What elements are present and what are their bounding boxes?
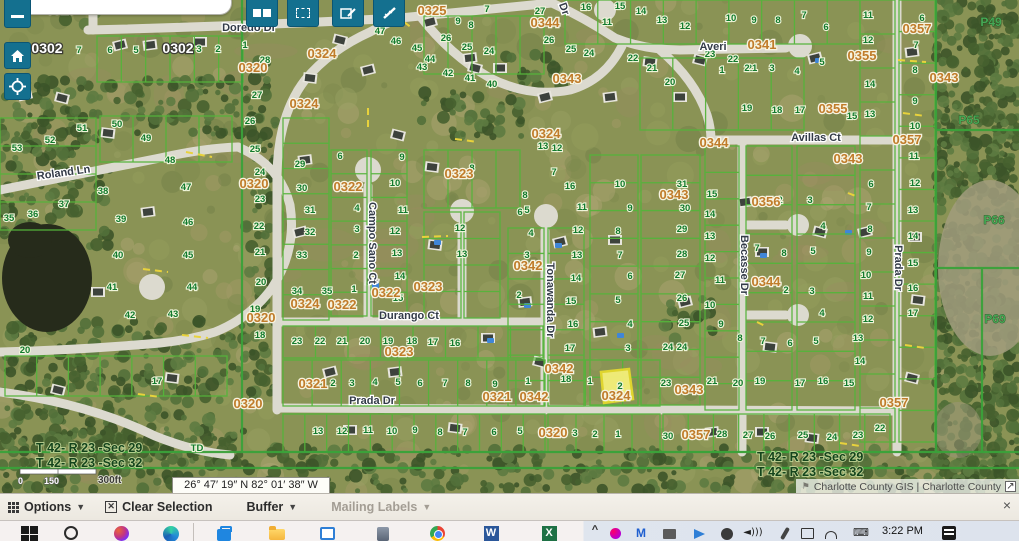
- svg-text:P65: P65: [958, 113, 980, 127]
- svg-text:4: 4: [627, 319, 633, 330]
- measure-icon: [382, 6, 397, 20]
- select-rectangle-icon: [296, 8, 310, 18]
- svg-text:9: 9: [866, 247, 871, 258]
- svg-text:3: 3: [354, 224, 359, 235]
- svg-text:16: 16: [568, 319, 579, 330]
- svg-text:9: 9: [718, 319, 723, 330]
- svg-text:27: 27: [252, 90, 263, 101]
- tray-audio-icon[interactable]: [718, 524, 736, 541]
- svg-text:12: 12: [863, 314, 874, 325]
- svg-text:43: 43: [417, 62, 428, 73]
- svg-text:26: 26: [544, 35, 555, 46]
- svg-text:9: 9: [399, 152, 404, 163]
- svg-text:5: 5: [810, 246, 816, 257]
- taskbar-store-button[interactable]: [215, 524, 233, 541]
- svg-text:0357: 0357: [880, 395, 909, 410]
- svg-text:42: 42: [125, 310, 136, 321]
- svg-text:13: 13: [705, 231, 716, 242]
- svg-text:22: 22: [628, 53, 639, 64]
- svg-text:23: 23: [853, 430, 864, 441]
- svg-text:20: 20: [665, 77, 676, 88]
- store-icon: [217, 529, 231, 541]
- svg-text:16: 16: [565, 181, 576, 192]
- svg-text:15: 15: [847, 111, 858, 122]
- svg-text:51: 51: [77, 123, 88, 134]
- svg-text:T 42- R 23 -Sec 32: T 42- R 23 -Sec 32: [757, 465, 863, 479]
- svg-text:26: 26: [677, 293, 688, 304]
- windows-taskbar: W X ^ M ◄))) ⌨ 3:22 PM: [0, 520, 1019, 541]
- tray-expand-button[interactable]: ^: [586, 524, 604, 541]
- svg-text:29: 29: [677, 224, 688, 235]
- svg-text:11: 11: [909, 151, 920, 162]
- svg-text:22: 22: [875, 423, 886, 434]
- svg-text:0341: 0341: [748, 37, 777, 52]
- printer-icon: [663, 529, 676, 539]
- svg-text:7: 7: [76, 45, 81, 56]
- windows-start-button[interactable]: [20, 524, 38, 541]
- svg-text:47: 47: [181, 182, 192, 193]
- svg-text:7: 7: [913, 40, 918, 51]
- svg-text:23: 23: [292, 336, 303, 347]
- svg-text:3: 3: [807, 195, 812, 206]
- svg-text:13: 13: [657, 15, 668, 26]
- tray-book-icon[interactable]: [798, 524, 816, 541]
- svg-text:22: 22: [315, 336, 326, 347]
- svg-text:35: 35: [4, 213, 15, 224]
- svg-text:13: 13: [392, 248, 403, 259]
- svg-text:7: 7: [617, 250, 622, 261]
- svg-text:12: 12: [863, 35, 874, 46]
- svg-text:12: 12: [390, 226, 401, 237]
- tray-pen-icon[interactable]: [776, 524, 794, 541]
- svg-text:6: 6: [491, 427, 496, 438]
- svg-text:32: 32: [305, 227, 316, 238]
- svg-text:T 42- R 23 -Sec 32: T 42- R 23 -Sec 32: [36, 456, 142, 470]
- tray-keyboard-icon[interactable]: ⌨: [852, 526, 870, 541]
- svg-text:13: 13: [538, 141, 549, 152]
- svg-text:14: 14: [636, 6, 647, 17]
- taskbar-copilot-button[interactable]: [112, 524, 130, 541]
- share-icon: [694, 529, 705, 539]
- svg-text:0342: 0342: [545, 361, 574, 376]
- svg-text:12: 12: [910, 178, 921, 189]
- svg-text:1: 1: [525, 376, 531, 387]
- chevron-down-icon: ▼: [422, 502, 431, 512]
- svg-text:0343: 0343: [834, 151, 863, 166]
- svg-text:6: 6: [417, 378, 422, 389]
- coordinates-readout: 26° 47′ 19″ N 82° 01′ 38″ W: [172, 477, 330, 493]
- svg-text:30: 30: [297, 183, 308, 194]
- svg-text:10: 10: [615, 179, 626, 190]
- svg-text:28: 28: [677, 249, 688, 260]
- svg-text:17: 17: [565, 343, 576, 354]
- taskbar-app-window-button[interactable]: [318, 524, 336, 541]
- svg-text:6: 6: [787, 338, 792, 349]
- svg-text:31: 31: [305, 205, 316, 216]
- svg-text:12: 12: [455, 223, 466, 234]
- svg-text:25: 25: [250, 144, 261, 155]
- svg-text:25: 25: [462, 42, 473, 53]
- svg-text:T 42- R 23 -Sec 29: T 42- R 23 -Sec 29: [36, 441, 142, 455]
- svg-text:1: 1: [242, 40, 248, 51]
- svg-text:Prada Dr: Prada Dr: [349, 395, 396, 407]
- svg-text:29: 29: [295, 159, 306, 170]
- svg-text:21: 21: [707, 376, 718, 387]
- svg-text:8: 8: [781, 248, 786, 259]
- svg-text:21: 21: [647, 63, 658, 74]
- svg-text:26: 26: [245, 116, 256, 127]
- svg-text:10: 10: [726, 13, 737, 24]
- app-window-icon: [320, 527, 335, 540]
- svg-text:2: 2: [592, 429, 597, 440]
- svg-text:45: 45: [183, 250, 194, 261]
- svg-text:8: 8: [775, 15, 780, 26]
- svg-text:7: 7: [442, 378, 447, 389]
- svg-text:0357: 0357: [903, 21, 932, 36]
- buffer-menu[interactable]: Buffer ▼: [236, 494, 307, 520]
- svg-text:45: 45: [412, 43, 423, 54]
- svg-text:11: 11: [363, 425, 374, 436]
- options-label: Options: [24, 500, 71, 514]
- svg-text:8: 8: [737, 333, 742, 344]
- svg-text:3: 3: [196, 44, 201, 55]
- attribution-logo-icon: ⚑: [802, 481, 810, 492]
- tray-network-icon[interactable]: [822, 524, 840, 541]
- svg-text:2: 2: [516, 290, 521, 301]
- svg-text:8: 8: [615, 226, 620, 237]
- svg-text:2: 2: [330, 378, 335, 389]
- svg-text:P49: P49: [980, 15, 1002, 29]
- svg-text:8: 8: [912, 65, 917, 76]
- svg-text:14: 14: [855, 356, 866, 367]
- svg-text:46: 46: [391, 36, 402, 47]
- close-icon[interactable]: ×: [1003, 497, 1011, 513]
- svg-text:20: 20: [256, 277, 267, 288]
- svg-text:5: 5: [819, 57, 825, 68]
- clear-selection-button[interactable]: ✕ Clear Selection: [95, 494, 222, 520]
- svg-text:14: 14: [705, 209, 716, 220]
- measure-button[interactable]: [373, 0, 405, 27]
- tray-speaker-icon[interactable]: ◄))): [744, 527, 762, 541]
- map-attribution: ⚑ Charlotte County GIS | Charlotte Count…: [796, 479, 1019, 493]
- svg-text:0344: 0344: [700, 135, 730, 150]
- svg-text:16: 16: [908, 283, 919, 294]
- svg-text:7: 7: [760, 336, 765, 347]
- svg-text:0322: 0322: [334, 179, 363, 194]
- svg-text:40: 40: [487, 79, 498, 90]
- svg-text:14: 14: [395, 271, 406, 282]
- svg-text:36: 36: [28, 209, 39, 220]
- svg-text:4: 4: [354, 203, 360, 214]
- svg-text:50: 50: [112, 119, 123, 130]
- svg-text:T 42- R 23 -Sec 29: T 42- R 23 -Sec 29: [757, 450, 863, 464]
- svg-text:0344: 0344: [752, 274, 782, 289]
- tray-copilot-icon[interactable]: [606, 524, 624, 541]
- news-icon: [942, 526, 956, 540]
- svg-text:0355: 0355: [819, 101, 848, 116]
- options-menu[interactable]: Options ▼: [0, 494, 95, 520]
- svg-text:17: 17: [908, 308, 919, 319]
- svg-text:0320: 0320: [239, 60, 268, 75]
- zoom-out-button[interactable]: [4, 0, 31, 28]
- svg-text:7: 7: [551, 167, 556, 178]
- home-button[interactable]: [4, 42, 31, 69]
- svg-text:17: 17: [152, 376, 163, 387]
- svg-text:47: 47: [375, 26, 386, 37]
- mailing-labels-menu[interactable]: Mailing Labels ▼: [321, 494, 441, 520]
- svg-text:6: 6: [868, 179, 873, 190]
- svg-text:44: 44: [187, 282, 198, 293]
- tray-printer-icon[interactable]: [660, 524, 678, 541]
- svg-text:25: 25: [798, 430, 809, 441]
- svg-text:25: 25: [679, 318, 690, 329]
- svg-text:41: 41: [107, 282, 118, 293]
- svg-text:23: 23: [661, 378, 672, 389]
- mailing-labels-label: Mailing Labels: [331, 500, 417, 514]
- svg-text:11: 11: [398, 205, 409, 216]
- grid-menu-icon: [8, 502, 19, 513]
- svg-text:300ft: 300ft: [98, 475, 122, 486]
- svg-text:TD: TD: [191, 443, 204, 454]
- svg-text:Prada Dr: Prada Dr: [892, 245, 904, 292]
- svg-text:Campo Sano Ct: Campo Sano Ct: [366, 202, 378, 284]
- svg-text:12: 12: [705, 253, 716, 264]
- svg-text:8: 8: [437, 427, 442, 438]
- expand-icon[interactable]: ↗: [1005, 481, 1016, 492]
- svg-text:8: 8: [468, 20, 473, 31]
- svg-text:17: 17: [795, 105, 806, 116]
- svg-text:21: 21: [255, 247, 266, 258]
- svg-text:5: 5: [524, 205, 530, 216]
- svg-text:0343: 0343: [553, 71, 582, 86]
- svg-text:0342: 0342: [520, 389, 549, 404]
- svg-text:0321: 0321: [299, 376, 328, 391]
- svg-text:10: 10: [705, 300, 716, 311]
- edit-icon: [340, 7, 356, 20]
- svg-text:17: 17: [795, 378, 806, 389]
- svg-text:4: 4: [819, 308, 825, 319]
- svg-text:0343: 0343: [930, 70, 959, 85]
- svg-text:5: 5: [133, 45, 139, 56]
- svg-text:0: 0: [18, 476, 23, 486]
- svg-text:4: 4: [820, 221, 826, 232]
- svg-text:10: 10: [861, 270, 872, 281]
- svg-text:0356: 0356: [752, 194, 781, 209]
- svg-text:19: 19: [742, 103, 753, 114]
- svg-text:19: 19: [755, 376, 766, 387]
- tray-share-icon[interactable]: [690, 524, 708, 541]
- svg-text:3: 3: [349, 378, 354, 389]
- svg-text:42: 42: [443, 68, 454, 79]
- svg-text:1: 1: [587, 376, 593, 387]
- svg-text:0322: 0322: [372, 285, 401, 300]
- svg-text:12: 12: [573, 225, 584, 236]
- svg-text:2: 2: [744, 63, 749, 74]
- svg-text:43: 43: [168, 309, 179, 320]
- svg-text:49: 49: [141, 133, 152, 144]
- taskbar-word-button[interactable]: W: [482, 524, 500, 541]
- taskbar-clock[interactable]: 3:22 PM: [882, 525, 923, 537]
- svg-text:13: 13: [457, 249, 468, 260]
- svg-text:14: 14: [865, 79, 876, 90]
- edit-button[interactable]: [332, 0, 364, 27]
- taskbar-news-button[interactable]: [940, 524, 958, 541]
- svg-text:0324: 0324: [602, 388, 632, 403]
- svg-text:6: 6: [823, 22, 828, 33]
- m-icon: M: [636, 526, 646, 540]
- chevron-down-icon: ▼: [288, 502, 297, 512]
- svg-text:4: 4: [794, 66, 800, 77]
- svg-text:3: 3: [625, 343, 630, 354]
- svg-text:9: 9: [412, 425, 417, 436]
- svg-text:20: 20: [360, 336, 371, 347]
- svg-text:Durango Ct: Durango Ct: [379, 310, 439, 322]
- locate-button[interactable]: [4, 73, 31, 100]
- gis-application-window: 20150300ft535251504948473837363539464045…: [0, 0, 1019, 541]
- svg-text:18: 18: [772, 105, 783, 116]
- taskbar-app-tool-button[interactable]: [374, 524, 392, 541]
- svg-text:15: 15: [566, 296, 577, 307]
- svg-text:26: 26: [765, 431, 776, 442]
- svg-text:2: 2: [215, 44, 220, 55]
- locate-icon: [9, 78, 26, 95]
- svg-text:0323: 0323: [414, 279, 443, 294]
- tray-mail-icon[interactable]: M: [632, 524, 650, 541]
- home-icon: [10, 49, 25, 63]
- svg-text:0357: 0357: [893, 132, 922, 147]
- taskbar-edge-button[interactable]: [162, 524, 180, 541]
- svg-text:9: 9: [455, 16, 460, 27]
- misc-labels: TD: [191, 443, 204, 454]
- svg-text:27: 27: [743, 430, 754, 441]
- chevron-down-icon: ▼: [76, 502, 85, 512]
- svg-text:16: 16: [581, 2, 592, 13]
- svg-text:13: 13: [908, 205, 919, 216]
- taskbar-chrome-button[interactable]: [428, 524, 446, 541]
- svg-text:15: 15: [844, 378, 855, 389]
- svg-text:11: 11: [715, 275, 726, 286]
- folder-icon: [269, 529, 285, 540]
- svg-text:8: 8: [867, 224, 872, 235]
- minus-icon: [11, 15, 24, 18]
- svg-text:0322: 0322: [328, 297, 357, 312]
- svg-text:22: 22: [254, 221, 265, 232]
- layers-button[interactable]: [246, 0, 278, 27]
- svg-text:16: 16: [818, 376, 829, 387]
- svg-text:0344: 0344: [531, 15, 561, 30]
- svg-text:25: 25: [566, 44, 577, 55]
- svg-text:48: 48: [165, 155, 176, 166]
- svg-text:0324: 0324: [308, 46, 338, 61]
- select-rectangle-button[interactable]: [287, 0, 319, 27]
- svg-text:0343: 0343: [660, 187, 689, 202]
- chrome-icon: [430, 526, 445, 541]
- svg-text:11: 11: [863, 10, 874, 21]
- svg-text:0320: 0320: [240, 176, 269, 191]
- svg-text:18: 18: [255, 330, 266, 341]
- svg-text:0357: 0357: [682, 427, 711, 442]
- svg-text:17: 17: [428, 337, 439, 348]
- svg-text:23: 23: [255, 194, 266, 205]
- svg-text:27: 27: [675, 270, 686, 281]
- svg-text:20: 20: [20, 345, 31, 356]
- svg-text:0324: 0324: [532, 126, 562, 141]
- svg-text:1: 1: [351, 284, 357, 295]
- svg-text:22: 22: [728, 54, 739, 65]
- svg-text:24: 24: [677, 342, 688, 353]
- svg-text:0324: 0324: [290, 96, 320, 111]
- svg-text:0325: 0325: [418, 3, 447, 18]
- windows-icon: [21, 526, 38, 541]
- taskbar-excel-button[interactable]: X: [540, 524, 558, 541]
- attribution-text: Charlotte County GIS | Charlotte County: [814, 481, 1001, 493]
- map-viewport[interactable]: 20150300ft535251504948473837363539464045…: [0, 0, 1019, 493]
- buffer-label: Buffer: [246, 500, 283, 514]
- copilot-icon: [114, 526, 129, 541]
- svg-text:46: 46: [183, 217, 194, 228]
- layers-icon: [253, 9, 271, 17]
- svg-text:0323: 0323: [445, 166, 474, 181]
- svg-text:15: 15: [707, 189, 718, 200]
- taskbar-search-button[interactable]: [62, 524, 80, 541]
- svg-text:2: 2: [783, 285, 788, 296]
- edge-icon: [163, 526, 179, 541]
- svg-text:P66: P66: [983, 213, 1005, 227]
- svg-text:4: 4: [372, 377, 378, 388]
- svg-text:16: 16: [450, 338, 461, 349]
- svg-text:26: 26: [441, 33, 452, 44]
- search-input[interactable]: [18, 0, 232, 15]
- svg-text:6: 6: [517, 207, 522, 218]
- svg-text:20: 20: [733, 378, 744, 389]
- svg-text:13: 13: [865, 109, 876, 120]
- svg-text:0323: 0323: [385, 344, 414, 359]
- svg-text:13: 13: [853, 333, 864, 344]
- taskbar-divider: [193, 523, 194, 541]
- taskbar-file-explorer-button[interactable]: [268, 524, 286, 541]
- svg-text:7: 7: [801, 10, 806, 21]
- svg-text:41: 41: [465, 73, 476, 84]
- svg-text:15: 15: [908, 258, 919, 269]
- svg-text:12: 12: [337, 426, 348, 437]
- svg-text:5: 5: [395, 377, 401, 388]
- svg-text:24: 24: [663, 342, 674, 353]
- svg-text:10: 10: [910, 121, 921, 132]
- svg-text:9: 9: [912, 96, 917, 107]
- svg-text:7: 7: [462, 427, 467, 438]
- svg-text:Avillas Ct: Avillas Ct: [791, 132, 841, 144]
- svg-text:Becasse Dr: Becasse Dr: [738, 235, 750, 296]
- svg-text:7: 7: [866, 202, 871, 213]
- svg-text:3: 3: [572, 428, 577, 439]
- svg-text:14: 14: [571, 273, 582, 284]
- svg-text:53: 53: [12, 143, 23, 154]
- svg-text:0302: 0302: [31, 40, 62, 56]
- audio-icon: [721, 528, 733, 540]
- clear-selection-label: Clear Selection: [122, 500, 212, 514]
- svg-text:13: 13: [313, 426, 324, 437]
- svg-text:6: 6: [627, 271, 632, 282]
- svg-text:5: 5: [517, 426, 523, 437]
- map-svg[interactable]: 20150300ft535251504948473837363539464045…: [0, 0, 1019, 493]
- svg-text:10: 10: [390, 178, 401, 189]
- svg-text:33: 33: [297, 250, 308, 261]
- svg-text:5: 5: [813, 336, 819, 347]
- svg-text:Averi: Averi: [699, 41, 726, 53]
- excel-icon: X: [542, 526, 557, 541]
- svg-text:7: 7: [484, 4, 489, 15]
- svg-text:0321: 0321: [483, 389, 512, 404]
